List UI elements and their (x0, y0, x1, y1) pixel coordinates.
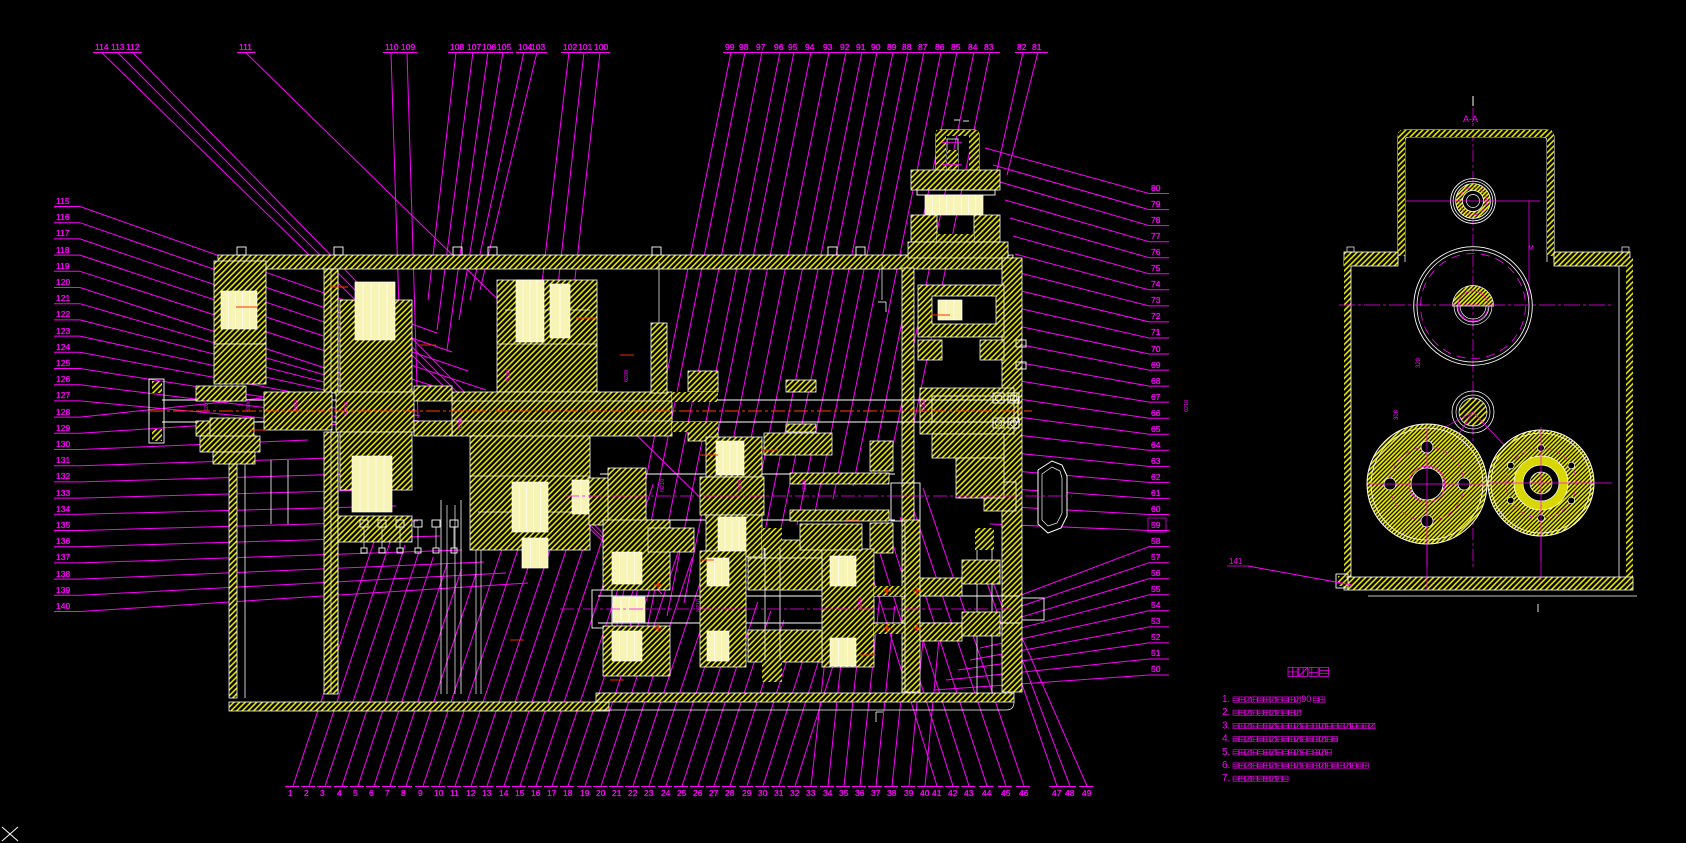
svg-text:135: 135 (56, 520, 70, 530)
svg-text:1: 1 (288, 788, 293, 798)
svg-text:92: 92 (840, 42, 850, 52)
svg-text:137: 137 (56, 552, 70, 562)
svg-text:56: 56 (1151, 568, 1161, 578)
svg-text:76: 76 (1151, 247, 1161, 257)
svg-text:116: 116 (56, 212, 70, 222)
svg-text:63: 63 (1151, 456, 1161, 466)
svg-text:115: 115 (56, 196, 70, 206)
svg-text:85: 85 (951, 42, 961, 52)
svg-text:A-A: A-A (1463, 114, 1478, 124)
svg-text:106: 106 (482, 42, 496, 52)
svg-text:7: 7 (385, 788, 390, 798)
svg-text:24: 24 (661, 788, 671, 798)
svg-text:90: 90 (1301, 694, 1311, 704)
svg-text:98: 98 (739, 42, 749, 52)
svg-text:119: 119 (56, 261, 70, 271)
svg-text:14: 14 (499, 788, 509, 798)
svg-text:27: 27 (709, 788, 719, 798)
svg-text:22: 22 (628, 788, 638, 798)
svg-text:59: 59 (1151, 520, 1161, 530)
svg-text:41: 41 (932, 788, 942, 798)
svg-text:52: 52 (1151, 632, 1161, 642)
svg-text:66: 66 (1151, 408, 1161, 418)
svg-text:89: 89 (887, 42, 897, 52)
svg-text:29: 29 (742, 788, 752, 798)
svg-text:84: 84 (968, 42, 978, 52)
svg-text:97: 97 (756, 42, 766, 52)
svg-text:110: 110 (385, 42, 399, 52)
svg-text:105: 105 (497, 42, 511, 52)
svg-text:129: 129 (56, 423, 70, 433)
svg-text:51: 51 (1151, 648, 1161, 658)
svg-text:138: 138 (56, 569, 70, 579)
svg-text:31: 31 (774, 788, 784, 798)
svg-text:54: 54 (1151, 600, 1161, 610)
svg-text:11: 11 (450, 788, 459, 798)
svg-text:328: 328 (1416, 357, 1422, 368)
svg-text:125: 125 (56, 358, 70, 368)
svg-text:N309: N309 (802, 479, 808, 492)
svg-text:72: 72 (1151, 311, 1161, 321)
svg-text:96: 96 (774, 42, 784, 52)
svg-text:112: 112 (126, 42, 140, 52)
svg-text:124: 124 (56, 342, 70, 352)
svg-text:M: M (1528, 245, 1534, 252)
svg-text:69: 69 (1151, 360, 1161, 370)
svg-text:136: 136 (56, 536, 70, 546)
svg-text:3: 3 (320, 788, 325, 798)
svg-text:80: 80 (1151, 183, 1161, 193)
svg-text:39: 39 (904, 788, 914, 798)
svg-text:6: 6 (369, 788, 374, 798)
svg-text:101: 101 (578, 42, 592, 52)
svg-text:99: 99 (725, 42, 735, 52)
svg-text:121: 121 (56, 293, 70, 303)
svg-text:43: 43 (964, 788, 974, 798)
svg-text:81: 81 (1032, 42, 1042, 52)
svg-text:131: 131 (56, 455, 70, 465)
svg-text:108: 108 (450, 42, 464, 52)
svg-text:140: 140 (56, 601, 70, 611)
svg-text:49: 49 (1082, 788, 1092, 798)
svg-text:16: 16 (531, 788, 541, 798)
svg-text:25: 25 (677, 788, 687, 798)
svg-text:134: 134 (56, 504, 70, 514)
svg-text:109: 109 (401, 42, 415, 52)
svg-text:91: 91 (856, 42, 866, 52)
svg-text:127: 127 (56, 390, 70, 400)
svg-text:18: 18 (563, 788, 573, 798)
svg-text:N208: N208 (344, 402, 350, 415)
svg-text:74: 74 (1151, 279, 1161, 289)
svg-text:5.: 5. (1222, 747, 1230, 758)
svg-text:47: 47 (1052, 788, 1062, 798)
svg-text:21: 21 (612, 788, 622, 798)
svg-text:6210: 6210 (1184, 400, 1190, 412)
svg-text:15: 15 (515, 788, 525, 798)
svg-text:40: 40 (920, 788, 930, 798)
svg-text:73: 73 (1151, 295, 1161, 305)
svg-text:126: 126 (56, 374, 70, 384)
svg-text:79: 79 (1151, 199, 1161, 209)
svg-text:2: 2 (304, 788, 309, 798)
svg-text:82: 82 (1017, 42, 1027, 52)
svg-text:58: 58 (1151, 536, 1161, 546)
svg-text:6309: 6309 (738, 480, 744, 492)
svg-text:113: 113 (111, 42, 125, 52)
svg-text:133: 133 (56, 488, 70, 498)
svg-text:61: 61 (1151, 488, 1161, 498)
svg-text:8: 8 (401, 788, 406, 798)
svg-text:60: 60 (1151, 504, 1161, 514)
svg-text:55: 55 (1151, 584, 1161, 594)
svg-text:95: 95 (788, 42, 798, 52)
svg-text:132: 132 (56, 471, 70, 481)
svg-text:128: 128 (56, 407, 70, 417)
svg-text:30: 30 (758, 788, 768, 798)
svg-text:78: 78 (1151, 215, 1161, 225)
svg-text:53: 53 (1151, 616, 1161, 626)
svg-text:12: 12 (466, 788, 476, 798)
svg-text:N210: N210 (660, 479, 666, 492)
svg-text:308: 308 (1394, 409, 1400, 420)
svg-text:7.: 7. (1222, 773, 1230, 784)
svg-text:36: 36 (855, 788, 865, 798)
svg-text:N207: N207 (294, 399, 300, 412)
svg-text:50: 50 (1151, 664, 1161, 674)
svg-text:77: 77 (1151, 231, 1161, 241)
svg-text:6.: 6. (1222, 760, 1230, 771)
svg-text:28: 28 (725, 788, 735, 798)
svg-text:62: 62 (1151, 472, 1161, 482)
svg-text:20: 20 (596, 788, 606, 798)
svg-text:44: 44 (982, 788, 992, 798)
svg-text:48: 48 (1065, 788, 1075, 798)
svg-text:65: 65 (1151, 424, 1161, 434)
svg-text:67: 67 (1151, 392, 1161, 402)
svg-text:10: 10 (434, 788, 444, 798)
svg-text:19: 19 (580, 788, 590, 798)
svg-text:N309: N309 (506, 369, 512, 382)
svg-text:45: 45 (1001, 788, 1011, 798)
svg-text:118: 118 (56, 245, 70, 255)
svg-text:6310: 6310 (858, 598, 864, 610)
svg-text:93: 93 (823, 42, 833, 52)
svg-text:117: 117 (56, 228, 70, 238)
svg-text:1.: 1. (1222, 694, 1230, 705)
svg-text:6207: 6207 (204, 400, 210, 412)
svg-text:107: 107 (467, 42, 481, 52)
svg-text:38: 38 (887, 788, 897, 798)
svg-text:70: 70 (1151, 344, 1161, 354)
svg-text:130: 130 (56, 439, 70, 449)
svg-text:123: 123 (56, 326, 70, 336)
svg-text:88: 88 (902, 42, 912, 52)
svg-text:102: 102 (563, 42, 577, 52)
svg-text:26: 26 (693, 788, 703, 798)
svg-text:23: 23 (644, 788, 654, 798)
svg-text:35: 35 (839, 788, 849, 798)
svg-text:2.: 2. (1222, 707, 1230, 718)
svg-text:9: 9 (418, 788, 423, 798)
svg-text:42: 42 (948, 788, 958, 798)
svg-text:6208: 6208 (624, 370, 630, 382)
svg-text:5: 5 (353, 788, 358, 798)
svg-text:94: 94 (805, 42, 815, 52)
svg-text:6210: 6210 (458, 418, 464, 430)
svg-text:83: 83 (984, 42, 994, 52)
svg-text:17: 17 (547, 788, 557, 798)
svg-text:141: 141 (1229, 557, 1243, 566)
svg-text:114: 114 (95, 42, 109, 52)
svg-text:90: 90 (871, 42, 881, 52)
svg-text:57: 57 (1151, 552, 1161, 562)
svg-text:6212: 6212 (921, 400, 927, 412)
svg-text:120: 120 (56, 277, 70, 287)
svg-text:103: 103 (531, 42, 545, 52)
svg-text:71: 71 (1151, 327, 1161, 337)
svg-text:6306: 6306 (246, 400, 252, 412)
svg-text:122: 122 (56, 309, 70, 319)
svg-text:34: 34 (823, 788, 833, 798)
svg-text:13: 13 (482, 788, 492, 798)
svg-text:32: 32 (790, 788, 800, 798)
svg-text:64: 64 (1151, 440, 1161, 450)
svg-text:86: 86 (935, 42, 945, 52)
svg-text:75: 75 (1151, 263, 1161, 273)
svg-text:139: 139 (56, 585, 70, 595)
svg-text:4: 4 (337, 788, 342, 798)
svg-text:4.: 4. (1222, 734, 1230, 745)
svg-text:68: 68 (1151, 376, 1161, 386)
svg-text:3.: 3. (1222, 720, 1230, 731)
svg-text:37: 37 (871, 788, 881, 798)
svg-text:33: 33 (806, 788, 816, 798)
svg-text:46: 46 (1019, 788, 1029, 798)
svg-text:100: 100 (594, 42, 608, 52)
svg-text:111: 111 (239, 42, 252, 52)
svg-text:87: 87 (918, 42, 928, 52)
svg-text:N210: N210 (696, 599, 702, 612)
